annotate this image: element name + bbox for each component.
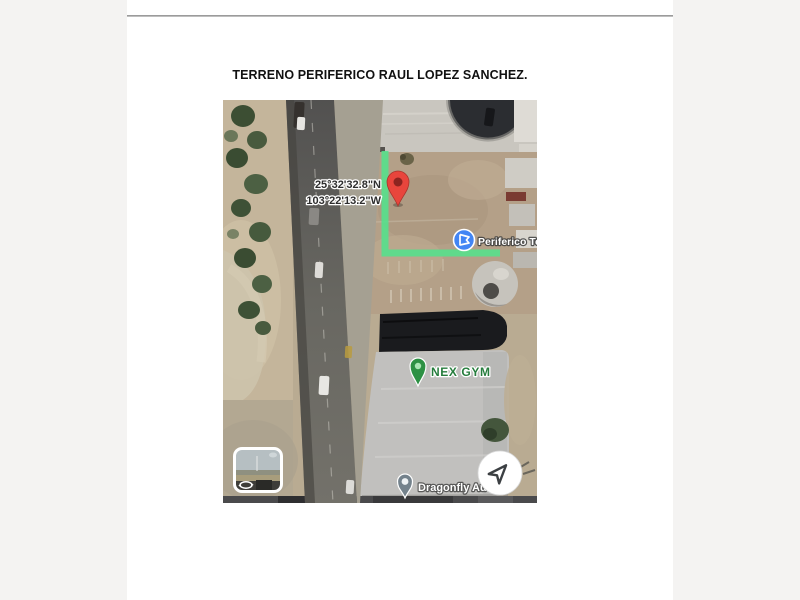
street-view-thumbnail[interactable] [233,447,283,493]
page-title: TERRENO PERIFERICO RAUL LOPEZ SANCHEZ. [107,68,653,82]
desktop-background: { "document": { "title": "TERRENO PERIFE… [0,0,800,600]
header-divider-line [127,15,673,17]
coordinates-line1: 25°32'32.8"N [315,179,381,191]
nex-gym-label: NEX GYM [431,365,491,379]
bottom-road-band [223,496,537,503]
satellite-map-image[interactable]: 25°32'32.8"N 103°22'13.2"W Periferico Te… [223,100,537,503]
coordinates-line2: 103°22'13.2"W [306,195,381,207]
periferico-label: Periferico Terr [478,236,537,248]
dragonfly-label: Dragonfly Au [418,482,487,494]
navigation-button[interactable] [478,451,522,495]
blue-place-icon [454,230,475,251]
map-canvas: 25°32'32.8"N 103°22'13.2"W Periferico Te… [223,100,537,503]
document-page: TERRENO PERIFERICO RAUL LOPEZ SANCHEZ. [127,0,673,600]
